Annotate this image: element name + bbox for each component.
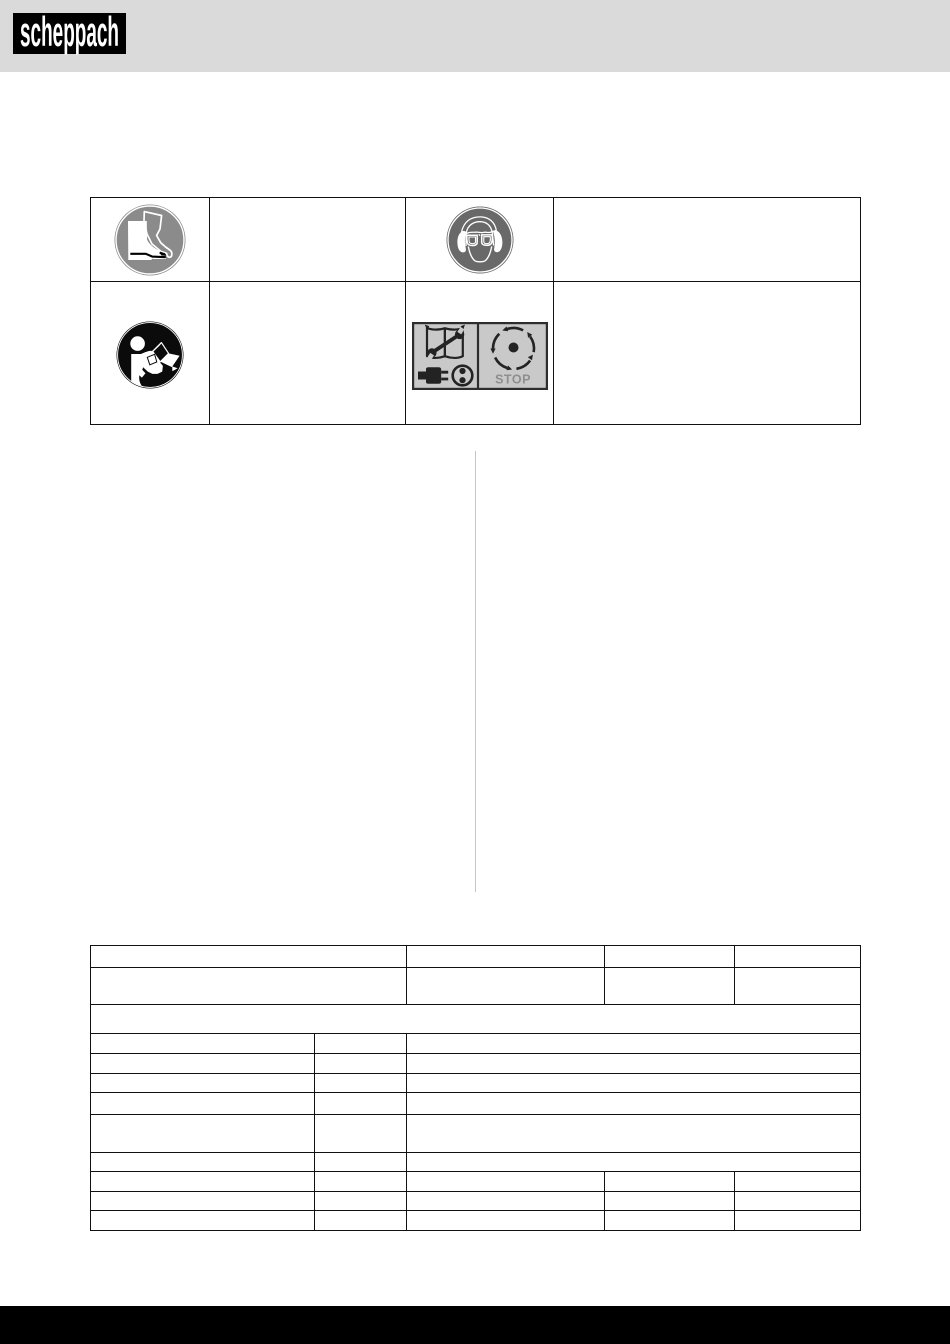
svg-text:STOP: STOP (495, 372, 531, 386)
svg-text:scheppach: scheppach (20, 8, 119, 55)
